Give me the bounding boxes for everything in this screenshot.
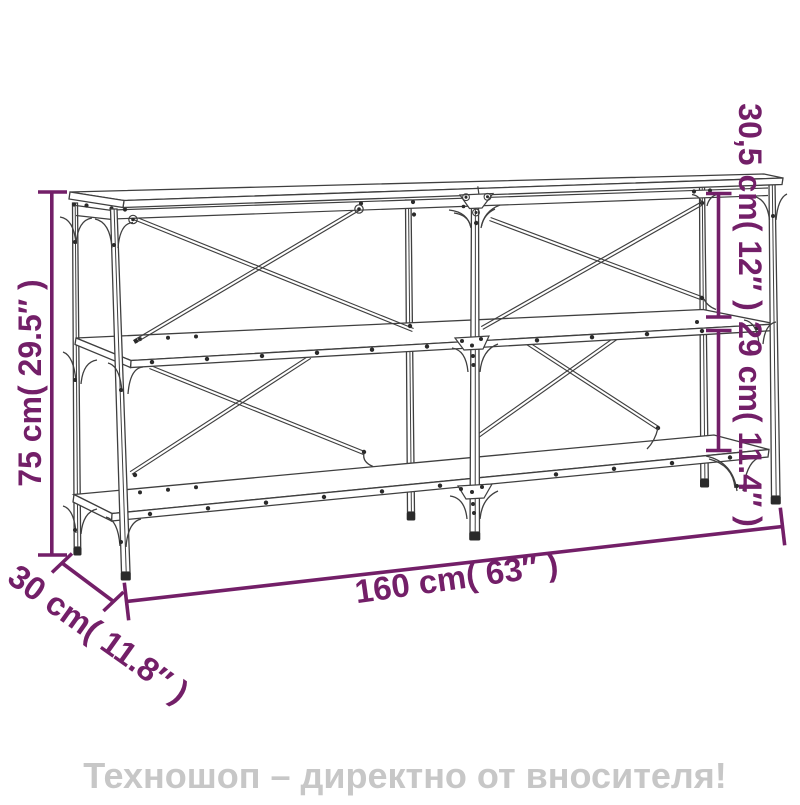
svg-text:29 cm( 11.4″ ): 29 cm( 11.4″ ) <box>732 321 768 527</box>
svg-text:Техношоп – директно от вносите: Техношоп – директно от вносителя! <box>83 755 726 796</box>
svg-text:30 cm( 11.8″ ): 30 cm( 11.8″ ) <box>2 557 196 710</box>
svg-text:160 cm( 63″ ): 160 cm( 63″ ) <box>352 545 560 610</box>
svg-text:30,5 cm( 12″ ): 30,5 cm( 12″ ) <box>732 103 768 310</box>
svg-text:75 cm( 29.5″ ): 75 cm( 29.5″ ) <box>12 279 48 486</box>
